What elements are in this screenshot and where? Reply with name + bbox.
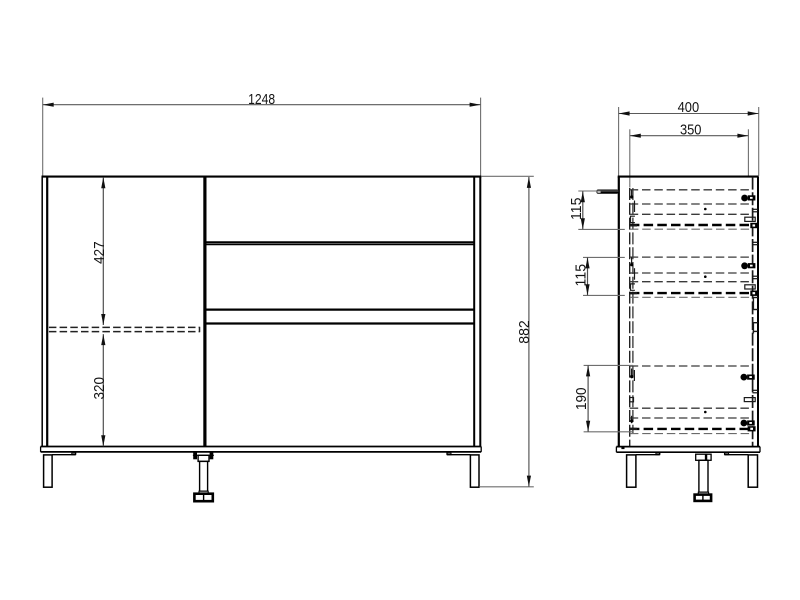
svg-text:115: 115 [574, 264, 590, 287]
svg-text:115: 115 [569, 198, 585, 221]
svg-text:190: 190 [574, 387, 590, 410]
svg-text:400: 400 [678, 100, 700, 116]
svg-text:320: 320 [92, 377, 108, 400]
svg-text:350: 350 [680, 122, 702, 138]
svg-text:882: 882 [517, 320, 533, 344]
svg-text:1248: 1248 [248, 92, 275, 108]
svg-text:427: 427 [92, 241, 108, 264]
